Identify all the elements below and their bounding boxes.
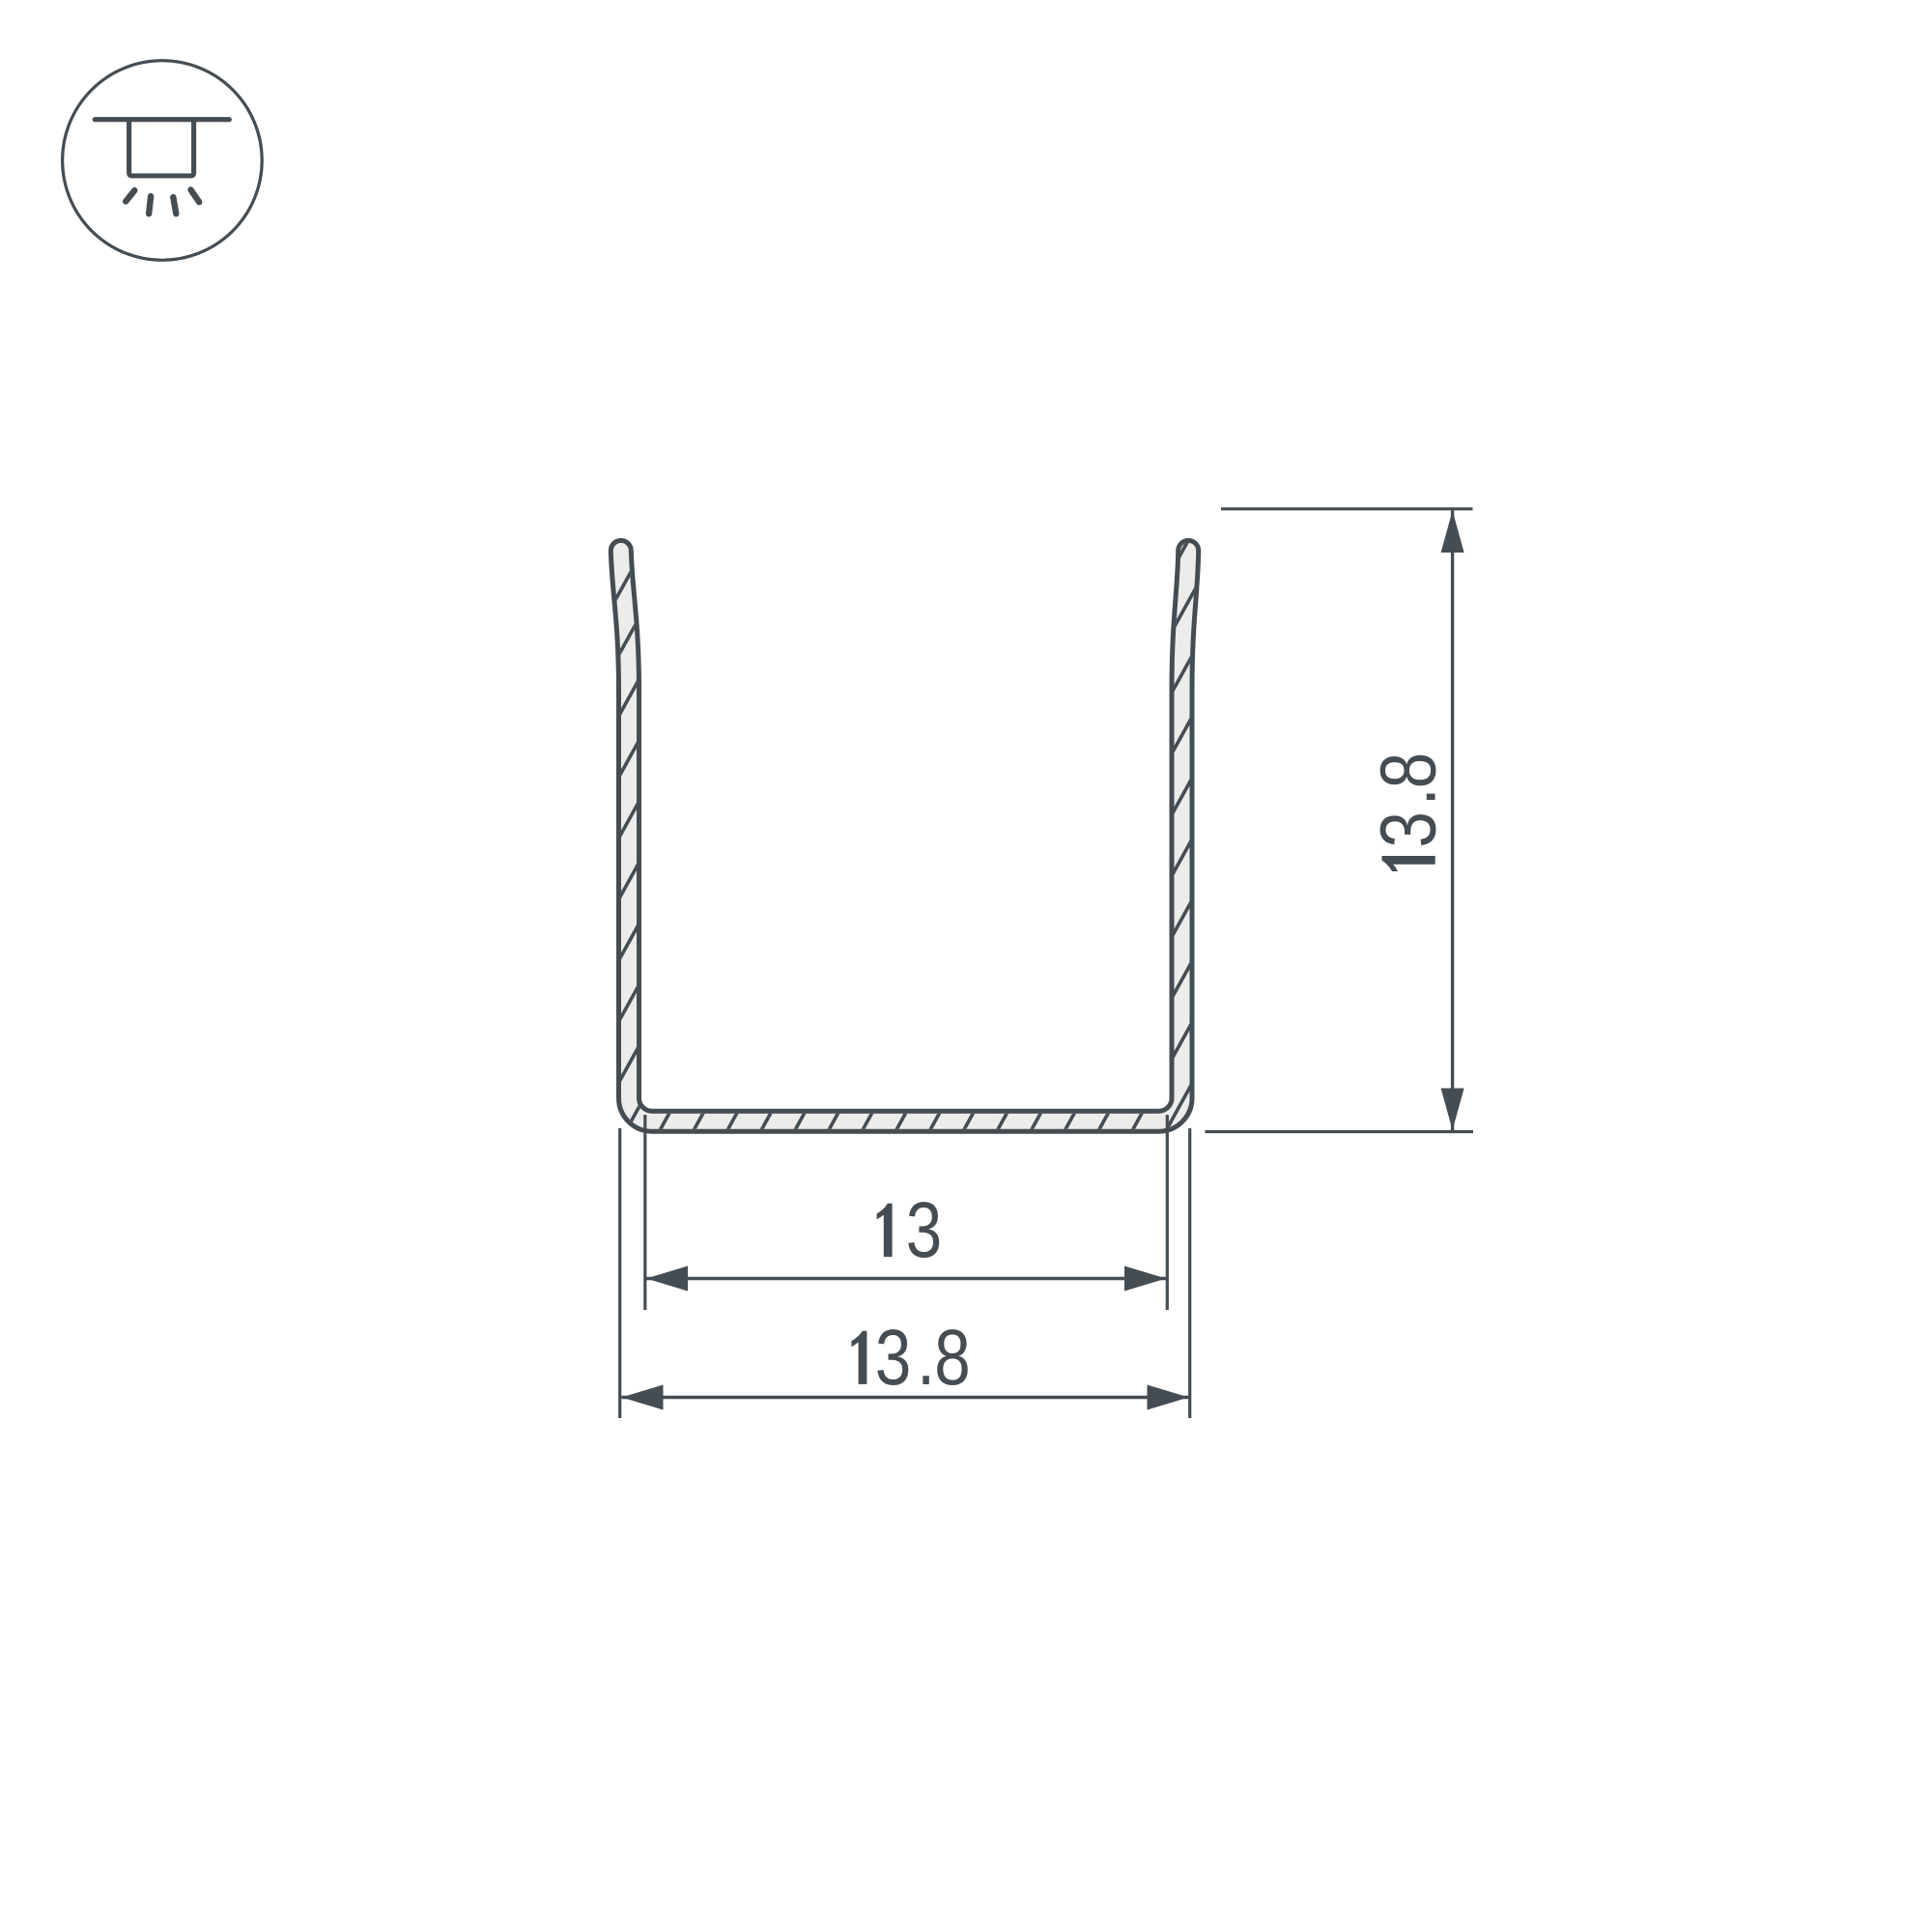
svg-text:.: . [917, 1313, 935, 1402]
svg-text:8: 8 [934, 1313, 970, 1402]
svg-text:3: 3 [906, 1185, 942, 1274]
svg-text:.: . [1363, 787, 1452, 806]
svg-text:3: 3 [1363, 811, 1452, 847]
svg-text:8: 8 [1363, 753, 1452, 788]
svg-text:3: 3 [875, 1313, 911, 1402]
